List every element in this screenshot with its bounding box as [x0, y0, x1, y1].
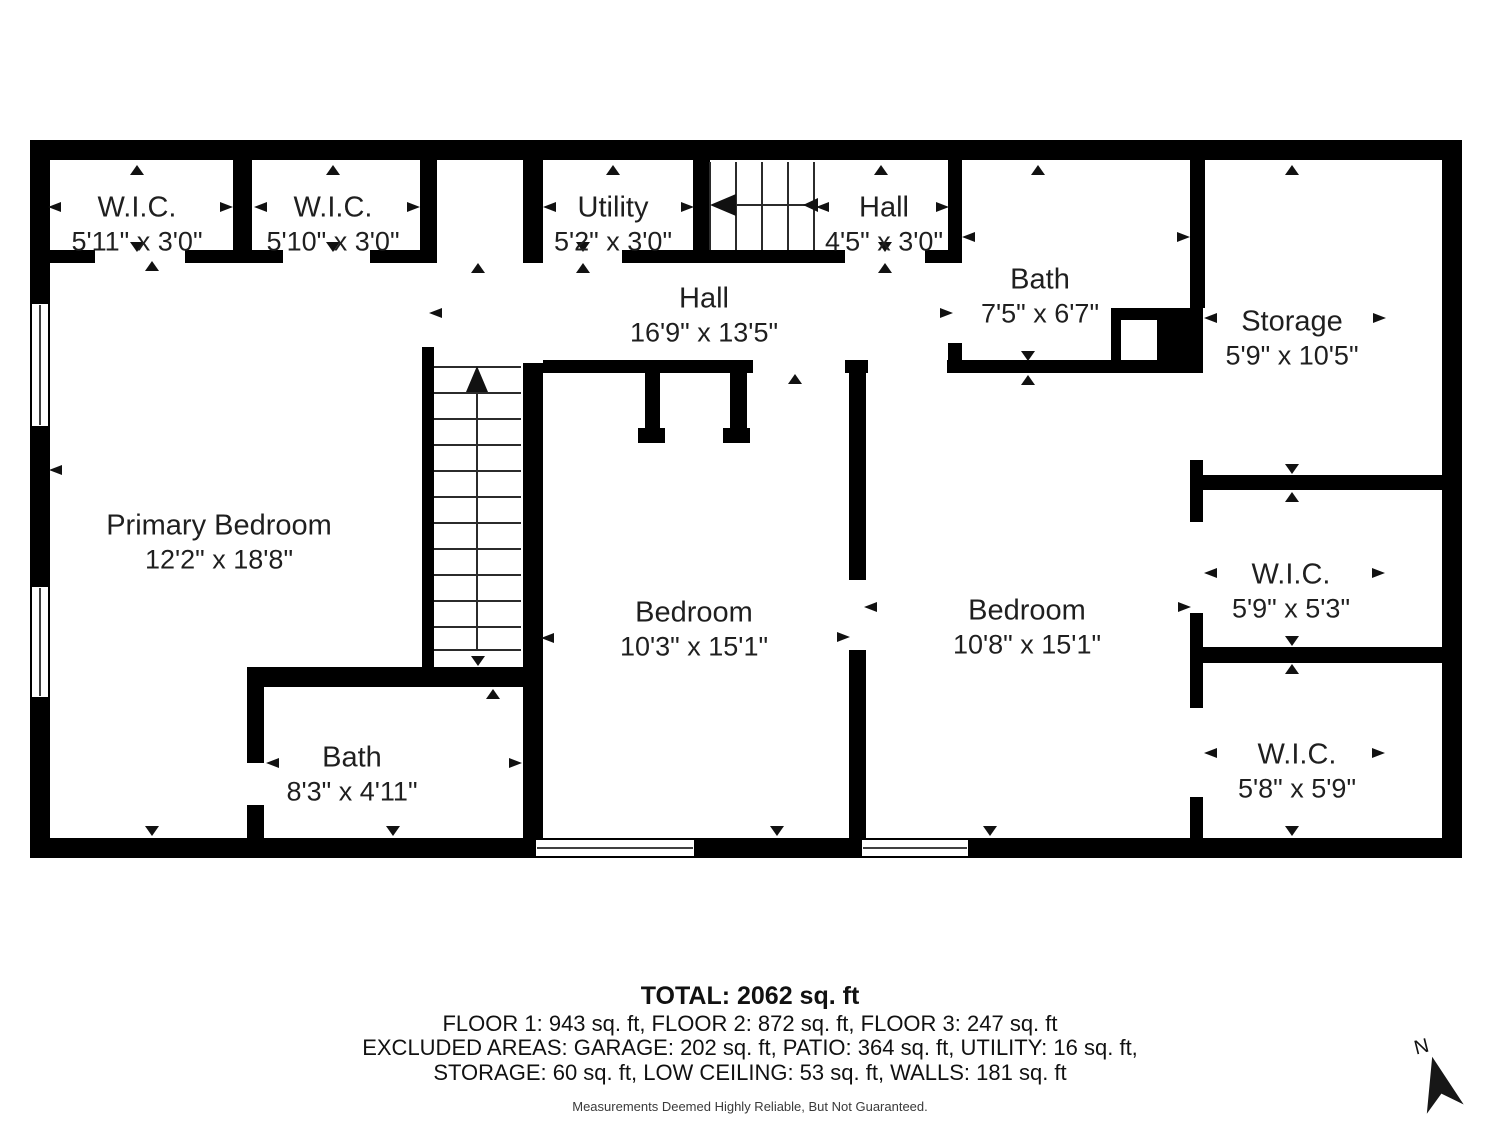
wall-segment: [1442, 160, 1462, 838]
room-dimensions: 5'8" x 5'9": [1238, 772, 1356, 804]
room-dimensions: 5'2" x 3'0": [554, 225, 672, 257]
wall-segment: [645, 373, 660, 428]
dimension-arrow: [1285, 826, 1299, 836]
wall-segment: [247, 667, 543, 687]
disclaimer: Measurements Deemed Highly Reliable, But…: [0, 1099, 1500, 1114]
room-dimensions: 5'11" x 3'0": [71, 225, 202, 257]
dimension-arrow: [486, 689, 500, 699]
dimension-arrow: [1372, 748, 1385, 758]
staircase-down: [710, 162, 818, 250]
room-name: Bedroom: [620, 595, 768, 630]
dimension-arrow: [1177, 232, 1190, 242]
room-label-primary-bedroom: Primary Bedroom 12'2" x 18'8": [106, 508, 332, 575]
room-dimensions: 4'5" x 3'0": [825, 225, 943, 257]
wall-segment: [948, 160, 962, 263]
dimension-arrow: [874, 165, 888, 175]
wall-segment: [1190, 160, 1205, 308]
dimension-arrow: [326, 165, 340, 175]
room-name: W.I.C.: [266, 190, 399, 225]
wall-segment: [723, 428, 750, 443]
wall-segment: [1190, 613, 1203, 708]
dimension-arrow: [407, 202, 420, 212]
dimension-arrow: [220, 202, 233, 212]
wall-segment: [247, 687, 264, 763]
dimension-arrow: [1372, 568, 1385, 578]
wall-segment: [638, 428, 665, 443]
room-name: Primary Bedroom: [106, 508, 332, 543]
dimension-arrow: [266, 758, 279, 768]
wall-segment: [1190, 460, 1203, 522]
room-dimensions: 10'8" x 15'1": [953, 628, 1101, 660]
dimension-arrow: [145, 826, 159, 836]
dimension-arrow: [864, 602, 877, 612]
room-label-bath-primary: Bath 8'3" x 4'11": [286, 740, 417, 807]
total-area: TOTAL: 2062 sq. ft: [0, 982, 1500, 1011]
room-label-storage: Storage 5'9" x 10'5": [1225, 304, 1358, 371]
north-label: N: [1412, 1035, 1431, 1060]
room-name: Bath: [286, 740, 417, 775]
room-label-wic-right-lower: W.I.C. 5'8" x 5'9": [1238, 737, 1356, 804]
dimension-arrow: [145, 261, 159, 271]
stair-direction-arrow: [710, 194, 736, 216]
wall-segment: [543, 360, 753, 373]
room-dimensions: 7'5" x 6'7": [981, 297, 1099, 329]
room-dimensions: 5'9" x 10'5": [1225, 339, 1358, 371]
dimension-arrow: [509, 758, 522, 768]
wall-segment: [947, 360, 1111, 373]
wall-segment: [1203, 475, 1442, 490]
dimension-arrow: [1204, 748, 1217, 758]
wall-segment: [422, 347, 434, 687]
excluded-areas-line2: STORAGE: 60 sq. ft, LOW CEILING: 53 sq. …: [0, 1062, 1500, 1084]
room-dimensions: 8'3" x 4'11": [286, 775, 417, 807]
room-label-bath-upper: Bath 7'5" x 6'7": [981, 262, 1099, 329]
excluded-areas-line1: EXCLUDED AREAS: GARAGE: 202 sq. ft, PATI…: [0, 1037, 1500, 1059]
duct-notch: [1121, 320, 1157, 360]
dimension-arrow: [606, 165, 620, 175]
dimension-arrow: [878, 263, 892, 273]
dimension-arrow: [471, 263, 485, 273]
room-label-hall-small: Hall 4'5" x 3'0": [825, 190, 943, 257]
dimension-arrow: [1178, 602, 1191, 612]
dimension-arrow: [983, 826, 997, 836]
room-name: W.I.C.: [71, 190, 202, 225]
wall-segment: [1203, 647, 1442, 663]
dimension-arrow: [130, 165, 144, 175]
dimension-arrow: [254, 202, 267, 212]
window-left-lower: [31, 586, 49, 698]
dimension-arrow: [1021, 375, 1035, 385]
stair-direction-arrow: [466, 366, 488, 392]
wall-segment: [523, 363, 543, 838]
dimension-arrow: [1021, 351, 1035, 361]
dimension-arrow: [1285, 636, 1299, 646]
wall-segment: [30, 160, 50, 838]
room-name: Bedroom: [953, 593, 1101, 628]
room-dimensions: 16'9" x 13'5": [630, 316, 778, 348]
dimension-arrow: [770, 826, 784, 836]
dimension-arrow: [1285, 165, 1299, 175]
room-name: Hall: [825, 190, 943, 225]
room-name: W.I.C.: [1238, 737, 1356, 772]
room-name: Hall: [630, 281, 778, 316]
stair-direction-tail: [803, 198, 818, 212]
wall-segment: [420, 160, 437, 263]
dimension-arrow: [1285, 664, 1299, 674]
room-name: W.I.C.: [1232, 557, 1350, 592]
room-dimensions: 10'3" x 15'1": [620, 630, 768, 662]
dimension-arrow: [1285, 464, 1299, 474]
room-label-wic-right-upper: W.I.C. 5'9" x 5'3": [1232, 557, 1350, 624]
north-arrow-icon: [1414, 1052, 1464, 1114]
dimension-arrow: [940, 308, 953, 318]
window-left-upper: [31, 303, 49, 427]
staircase-up: [434, 366, 521, 650]
wall-segment: [730, 373, 747, 428]
dimension-arrow: [1285, 492, 1299, 502]
room-label-hall-main: Hall 16'9" x 13'5": [630, 281, 778, 348]
dimension-arrow: [49, 465, 62, 475]
room-dimensions: 5'9" x 5'3": [1232, 592, 1350, 624]
dimension-arrow: [1031, 165, 1045, 175]
room-label-utility: Utility 5'2" x 3'0": [554, 190, 672, 257]
dimension-arrow: [1373, 313, 1386, 323]
wall-segment: [523, 160, 543, 263]
room-name: Storage: [1225, 304, 1358, 339]
dimension-arrow: [962, 232, 975, 242]
room-name: Utility: [554, 190, 672, 225]
room-dimensions: 5'10" x 3'0": [266, 225, 399, 257]
wall-segment: [849, 373, 866, 580]
room-label-bedroom-right: Bedroom 10'8" x 15'1": [953, 593, 1101, 660]
wall-segment: [247, 805, 264, 838]
wall-segment: [233, 160, 252, 252]
dimension-arrow: [386, 826, 400, 836]
dimension-arrow: [788, 374, 802, 384]
room-label-wic-top-right: W.I.C. 5'10" x 3'0": [266, 190, 399, 257]
dimension-arrow: [681, 202, 694, 212]
area-summary: TOTAL: 2062 sq. ft FLOOR 1: 943 sq. ft, …: [0, 982, 1500, 1114]
wall-segment: [30, 838, 1462, 858]
dimension-arrow: [1204, 568, 1217, 578]
dimension-arrow: [837, 632, 850, 642]
window-bottom-right: [861, 839, 969, 857]
wall-segment: [1190, 797, 1203, 838]
dimension-arrow: [429, 308, 442, 318]
room-label-bedroom-left: Bedroom 10'3" x 15'1": [620, 595, 768, 662]
wall-segment: [693, 160, 710, 263]
north-compass: N: [1396, 1018, 1480, 1118]
dimension-arrow: [1204, 313, 1217, 323]
room-label-wic-top-left: W.I.C. 5'11" x 3'0": [71, 190, 202, 257]
window-bottom-left: [535, 839, 695, 857]
dimension-arrow: [576, 263, 590, 273]
wall-segment: [30, 140, 1462, 160]
room-name: Bath: [981, 262, 1099, 297]
wall-segment: [849, 650, 866, 838]
floor-areas: FLOOR 1: 943 sq. ft, FLOOR 2: 872 sq. ft…: [0, 1013, 1500, 1035]
room-dimensions: 12'2" x 18'8": [106, 543, 332, 575]
wall-segment: [845, 360, 868, 373]
floor-plan-page: W.I.C. 5'11" x 3'0" W.I.C. 5'10" x 3'0" …: [0, 0, 1500, 1125]
dimension-arrow: [471, 656, 485, 666]
